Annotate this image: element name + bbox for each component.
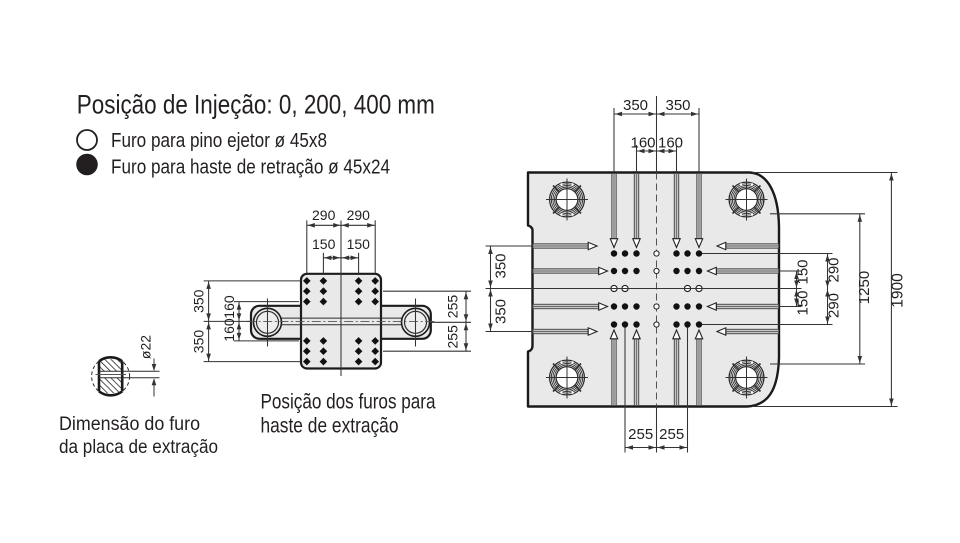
svg-text:Posição dos furos para: Posição dos furos para [261,391,436,414]
svg-text:150: 150 [312,236,336,252]
svg-text:290: 290 [826,257,843,282]
svg-text:Furo para haste de retração ø: Furo para haste de retração ø 45x24 [111,157,390,179]
svg-text:350: 350 [493,253,510,278]
svg-text:255: 255 [628,426,653,443]
svg-text:Furo para pino ejetor ø 45x8: Furo para pino ejetor ø 45x8 [111,130,327,152]
svg-text:290: 290 [312,207,336,223]
svg-text:255: 255 [445,295,461,319]
svg-text:ø22: ø22 [138,335,154,359]
svg-text:350: 350 [665,97,690,114]
svg-text:350: 350 [493,299,510,324]
svg-text:290: 290 [347,207,371,223]
svg-text:haste de extração: haste de extração [261,414,399,437]
svg-text:160: 160 [630,135,655,152]
svg-text:350: 350 [623,97,648,114]
svg-text:Dimensão do furo: Dimensão do furo [59,414,200,435]
svg-text:160: 160 [221,318,237,342]
svg-text:255: 255 [445,325,461,349]
svg-text:da placa de extração: da placa de extração [59,437,218,458]
svg-text:160: 160 [221,295,237,319]
svg-text:150: 150 [347,236,371,252]
svg-text:1900: 1900 [890,273,907,308]
svg-text:255: 255 [659,426,684,443]
svg-text:150: 150 [795,290,812,315]
svg-text:160: 160 [658,135,683,152]
svg-text:350: 350 [191,289,207,313]
svg-text:Posição de Injeção: 0, 200, 40: Posição de Injeção: 0, 200, 400 mm [77,90,435,120]
svg-text:350: 350 [191,330,207,354]
svg-text:290: 290 [826,293,843,318]
svg-text:1250: 1250 [856,271,873,304]
svg-text:150: 150 [795,259,812,284]
